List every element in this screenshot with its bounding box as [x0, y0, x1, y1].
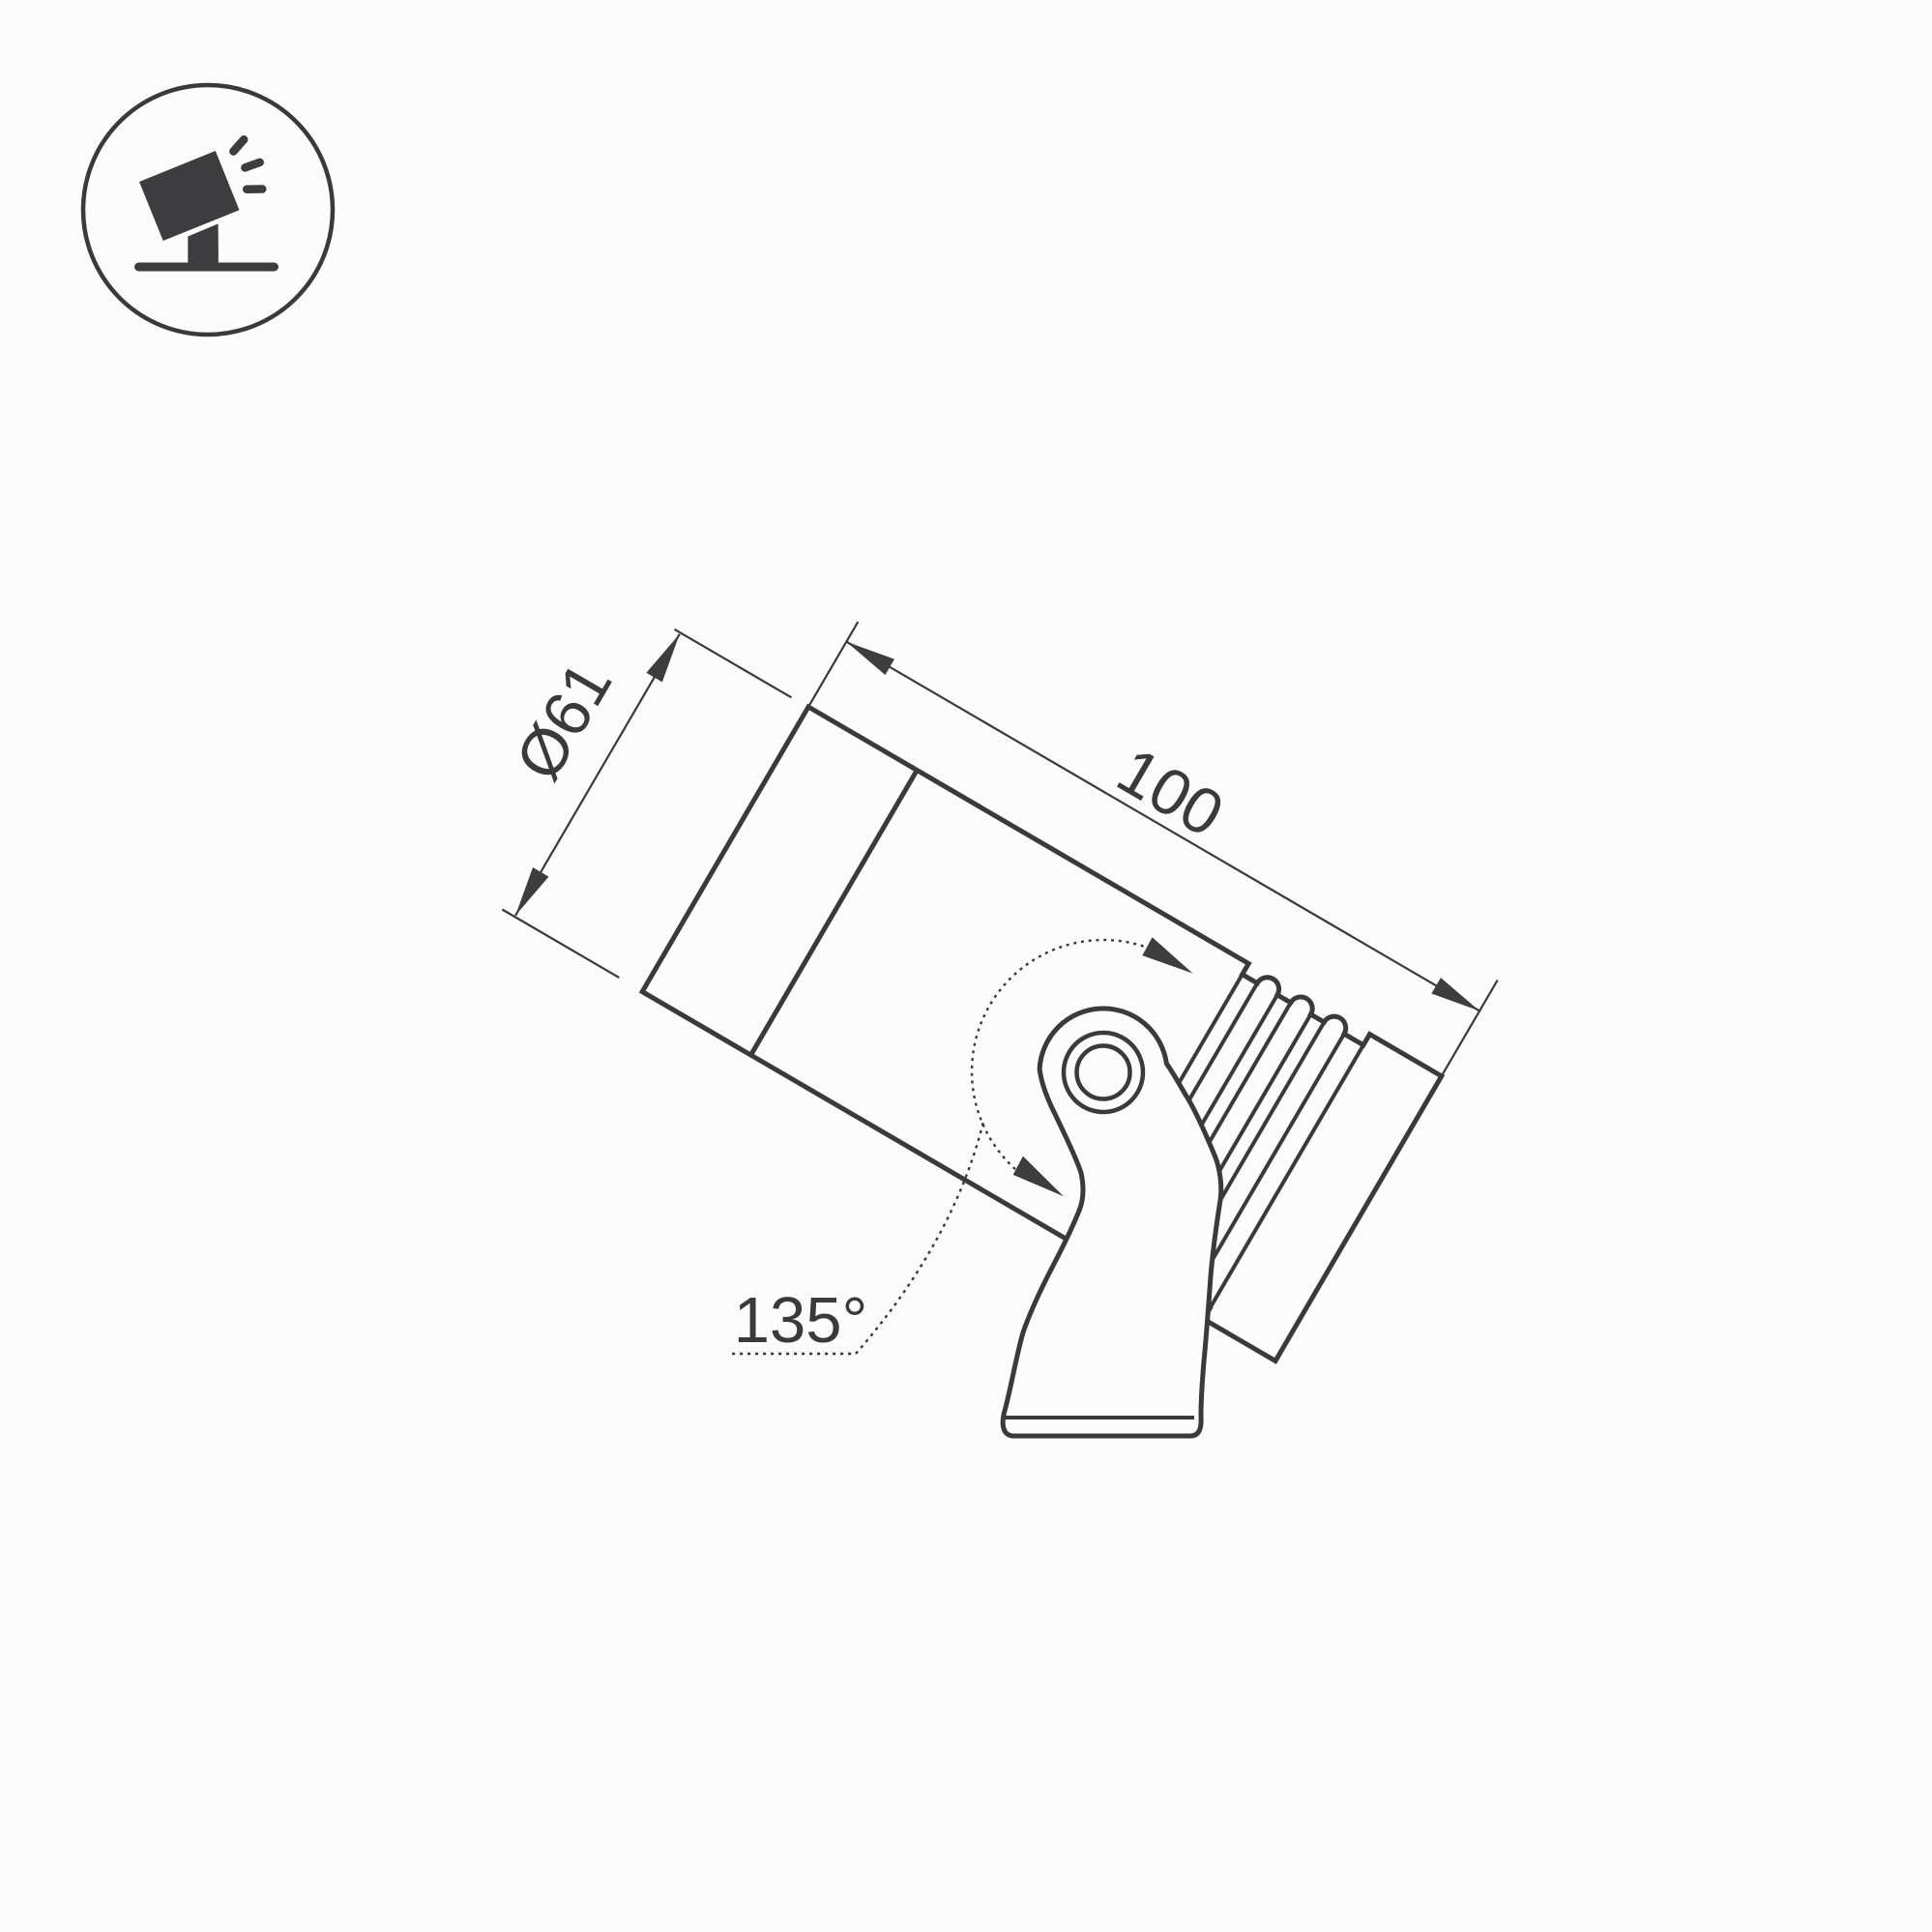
svg-text:135°: 135°	[734, 1284, 868, 1357]
